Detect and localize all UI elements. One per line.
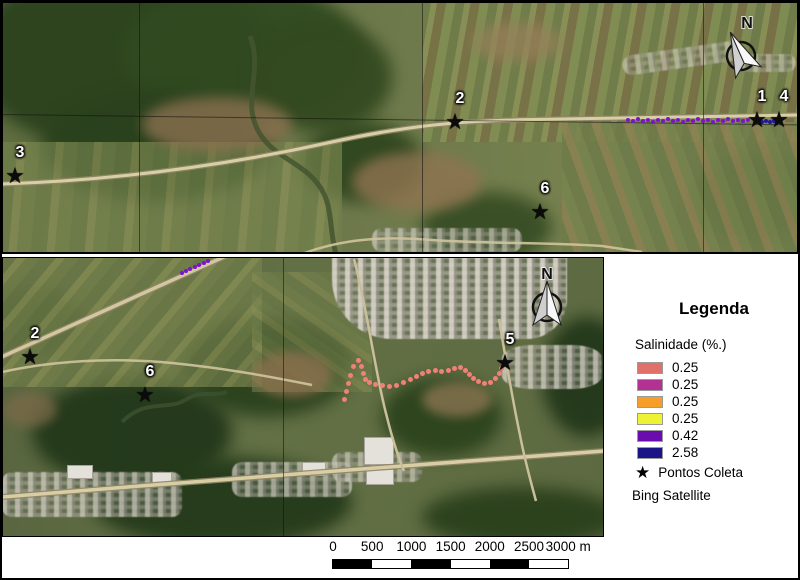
salinity-025-points-dot	[380, 383, 385, 388]
station-label-4: 4	[773, 88, 795, 106]
salinity-025-points-dot	[387, 384, 392, 389]
scalebar-tick-label: 2500	[514, 539, 544, 554]
station-marker-5[interactable]: ★	[493, 352, 517, 374]
scalebar-tick-label: 0	[329, 539, 337, 554]
salinity-025-points-dot	[373, 382, 378, 387]
station-label-6: 6	[139, 363, 161, 381]
salinity-042-points-dot	[731, 119, 735, 123]
salinity-025-points-dot	[361, 371, 366, 376]
legend-class-label: 0.42	[672, 428, 698, 443]
salinity-042-points-dot	[701, 119, 705, 123]
legend-class-row: 0.25	[637, 376, 798, 393]
salinity-042-points-dot	[696, 117, 700, 121]
legend-class-row: 2.58	[637, 444, 798, 461]
north-label: N	[741, 15, 753, 32]
salinity-025-points-dot	[452, 366, 457, 371]
salinity-042-points-dot	[641, 119, 645, 123]
salinity-025-points-dot	[458, 365, 463, 370]
legend-class-row: 0.42	[637, 427, 798, 444]
overview-map-canvas[interactable]: ★3★2★6★1★4 N	[2, 2, 798, 254]
scalebar-tick-label: 2000	[475, 539, 505, 554]
scalebar-segment	[529, 560, 568, 568]
salinity-025-points-dot	[344, 389, 349, 394]
salinity-042-points-dot	[711, 120, 715, 124]
legend-class-list: 0.250.250.250.250.422.58	[604, 359, 798, 461]
scalebar-segment	[333, 560, 372, 568]
salinity-042-points-dot	[686, 118, 690, 122]
salinity-042-points-dot	[691, 119, 695, 123]
salinity-025-points-dot	[367, 380, 372, 385]
salinity-025-points-dot	[471, 376, 476, 381]
salinity-042-points-dot	[197, 263, 201, 267]
salinity-042-points-dot	[736, 118, 740, 122]
legend-class-row: 0.25	[637, 393, 798, 410]
station-marker-6[interactable]: ★	[133, 384, 157, 406]
salinity-042-points-dot	[626, 118, 630, 122]
salinity-025-points-dot	[401, 380, 406, 385]
salinity-042-points-dot	[706, 118, 710, 122]
legend-points-row: ★ Pontos Coleta	[635, 463, 798, 481]
legend-class-row: 0.25	[637, 410, 798, 427]
salinity-025-points-dot	[426, 369, 431, 374]
salinity-025-points-dot	[342, 397, 347, 402]
salinity-042-points-dot	[716, 118, 720, 122]
scalebar-segment	[490, 560, 529, 568]
salinity-042-points-dot	[631, 119, 635, 123]
legend-color-swatch	[637, 362, 663, 374]
salinity-025-points-dot	[420, 371, 425, 376]
north-arrow: N	[521, 265, 573, 331]
salinity-042-points-dot	[671, 119, 675, 123]
legend-color-swatch	[637, 413, 663, 425]
legend-class-label: 0.25	[672, 377, 698, 392]
legend-class-label: 0.25	[672, 360, 698, 375]
legend-class-label: 2.58	[672, 445, 698, 460]
scalebar-segment	[372, 560, 411, 568]
scalebar: 050010001500200025003000 m	[333, 539, 593, 575]
salinity-025-points-dot	[488, 380, 493, 385]
legend-points-label: Pontos Coleta	[658, 465, 743, 480]
north-arrow: N	[715, 14, 767, 80]
scalebar-bar	[332, 559, 569, 569]
salinity-025-points-dot	[346, 381, 351, 386]
station-marker-6[interactable]: ★	[528, 201, 552, 223]
legend-class-label: 0.25	[672, 411, 698, 426]
salinity-042-points-dot	[676, 118, 680, 122]
north-label: N	[541, 266, 553, 283]
station-marker-3[interactable]: ★	[3, 165, 27, 187]
scalebar-area: 050010001500200025003000 m	[2, 537, 798, 578]
salinity-042-points-dot	[651, 120, 655, 124]
station-marker-4[interactable]: ★	[767, 109, 791, 131]
salinity-042-points-dot	[721, 119, 725, 123]
station-label-1: 1	[751, 88, 773, 106]
legend-panel: Legenda Salinidade (%.) 0.250.250.250.25…	[604, 257, 798, 537]
salinity-042-points-dot	[666, 117, 670, 121]
salinity-042-points-dot	[656, 118, 660, 122]
legend-color-swatch	[637, 447, 663, 459]
salinity-025-points-dot	[414, 374, 419, 379]
salinity-042-points-dot	[726, 117, 730, 121]
salinity-025-points-dot	[394, 383, 399, 388]
legend-title: Legenda	[630, 299, 798, 319]
detail-map-canvas[interactable]: ★2★6★5 N	[2, 257, 604, 537]
salinity-025-points-dot	[359, 364, 364, 369]
salinity-025-points-dot	[356, 358, 361, 363]
station-marker-1[interactable]: ★	[745, 109, 769, 131]
legend-color-swatch	[637, 430, 663, 442]
station-label-2: 2	[449, 90, 471, 108]
scalebar-tick-label: 500	[361, 539, 384, 554]
scalebar-tick-label: 1000	[396, 539, 426, 554]
scalebar-tick-label: 3000 m	[546, 539, 591, 554]
salinity-025-points-dot	[433, 368, 438, 373]
station-label-5: 5	[499, 331, 521, 349]
legend-layer-title: Salinidade (%.)	[635, 337, 798, 352]
salinity-042-points-dot	[661, 119, 665, 123]
overview-map-markers: ★3★2★6★1★4	[2, 2, 798, 254]
salinity-025-points-dot	[476, 379, 481, 384]
legend-class-label: 0.25	[672, 394, 698, 409]
legend-color-swatch	[637, 396, 663, 408]
scalebar-segment	[451, 560, 490, 568]
salinity-042-points-dot	[681, 120, 685, 124]
detail-map-markers: ★2★6★5	[2, 257, 604, 537]
scalebar-segment	[411, 560, 450, 568]
salinity-025-points-dot	[408, 377, 413, 382]
salinity-042-points-dot	[646, 118, 650, 122]
salinity-042-points-dot	[206, 259, 210, 263]
station-label-6: 6	[534, 180, 556, 198]
map-figure: ★3★2★6★1★4 N	[0, 0, 800, 580]
scalebar-tick-label: 1500	[436, 539, 466, 554]
legend-basemap-label: Bing Satellite	[632, 488, 798, 503]
station-label-3: 3	[9, 144, 31, 162]
salinity-042-points-dot	[636, 117, 640, 121]
station-label-2: 2	[24, 325, 46, 343]
salinity-025-points-dot	[482, 381, 487, 386]
salinity-025-points-dot	[439, 369, 444, 374]
star-icon: ★	[635, 464, 650, 481]
station-marker-2[interactable]: ★	[18, 346, 42, 368]
salinity-025-points-dot	[351, 364, 356, 369]
legend-color-swatch	[637, 379, 663, 391]
station-marker-2[interactable]: ★	[443, 111, 467, 133]
salinity-042-points-dot	[188, 267, 192, 271]
salinity-025-points-dot	[493, 376, 498, 381]
salinity-025-points-dot	[446, 368, 451, 373]
salinity-025-points-dot	[348, 373, 353, 378]
legend-class-row: 0.25	[637, 359, 798, 376]
